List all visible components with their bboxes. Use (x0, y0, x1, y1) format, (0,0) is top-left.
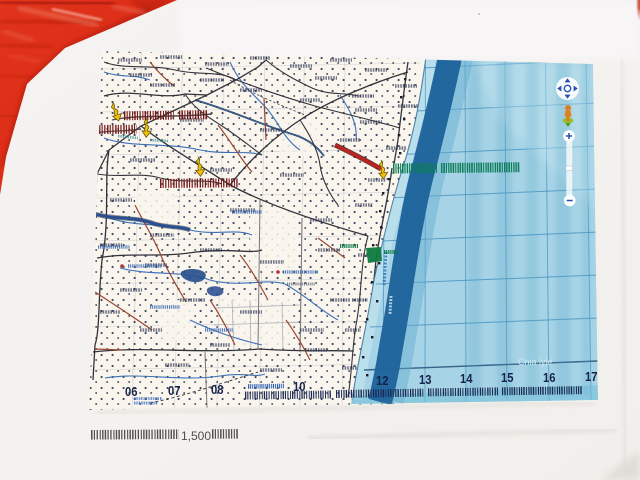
svg-text:17: 17 (585, 370, 598, 384)
svg-text:Cnia lyle: Cnia lyle (518, 357, 553, 367)
svg-text:08: 08 (211, 382, 224, 397)
svg-text:06: 06 (125, 384, 138, 399)
svg-text:1,500: 1,500 (181, 429, 211, 443)
svg-text:16: 16 (543, 371, 556, 385)
svg-text:12: 12 (376, 374, 389, 388)
svg-text:07: 07 (168, 383, 181, 398)
svg-text:13: 13 (419, 373, 432, 387)
svg-text:15: 15 (501, 371, 514, 385)
svg-text:14: 14 (460, 372, 473, 386)
